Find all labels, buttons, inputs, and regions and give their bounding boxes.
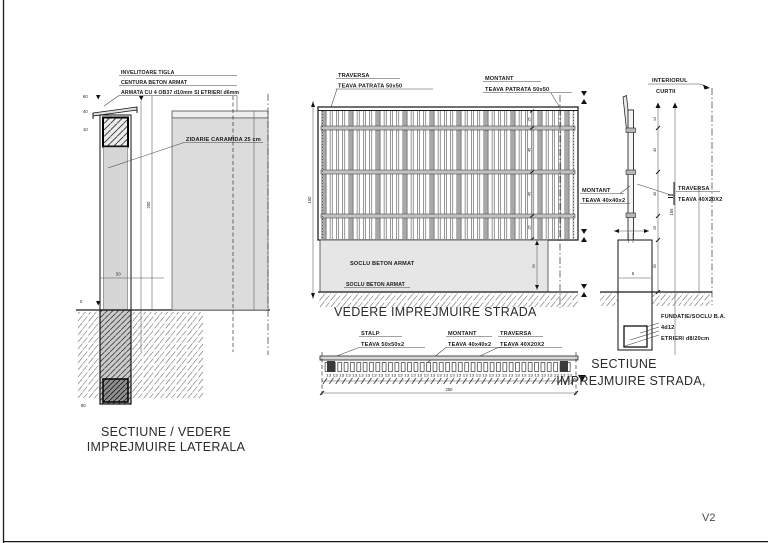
centura-band [172,111,268,118]
interior-label-line2: CURTII [656,89,676,95]
dim-ground: 0 [80,299,83,304]
level-marker-icon [581,292,587,297]
traversa-label: TRAVERSA [338,73,370,79]
section-title-line2: IMPREJMUIRE STRADA, [556,374,705,388]
elevation-markers [581,91,587,297]
stalp-spec: TEAVA 50x50x2 [361,342,404,348]
seg-dim: 25 [528,117,532,121]
seg-dim: 45 [653,192,657,196]
dim-soclu: 50 [116,272,121,277]
footing-block [103,379,128,402]
level-marker-icon [96,95,101,100]
dim-panel-height: 150 [307,196,312,204]
seg-dim: 50 [653,264,657,268]
lateral-section-view: INVELITOARE TIGLA CENTURA BETON ARMAT AR… [76,70,270,454]
soclu-label: SOCLU BETON ARMAT [350,261,415,267]
level-marker-icon [581,91,587,96]
traversa-label: TRAVERSA [678,186,710,192]
callout-leader [478,348,498,358]
soil-hatch [78,312,99,398]
centura-beton-hatched [103,118,128,147]
wall-label: ZIDARIE CARAMIDA 25 cm [186,137,261,143]
dim-arrow-icon [311,293,315,299]
montant-label: MONTANT [448,331,477,337]
street-view-title: VEDERE IMPREJMUIRE STRADA [334,305,537,319]
section-title-line1: SECTIUNE [591,357,657,371]
fence-panel [318,107,578,240]
montant-spec: TEAVA 40x40x2 [448,342,491,348]
note-armare: ARMATA CU 4 OB37 d10mm SI ETRIERI d6mm [121,90,239,96]
note-invelitoare: INVELITOARE TIGLA [121,70,175,76]
traversa-spec: TEAVA PATRATA 50x50 [338,84,402,90]
street-section-view: INTERIORUL CURTII MONTANT TEAVA 40x40x2 [556,78,726,388]
montant-section-callout: MONTANT TEAVA 40x40x2 [580,186,630,204]
traversa-rail [321,214,575,218]
revision-label: V2 [702,512,715,524]
callout-leader [334,348,359,358]
overall-dim: 250 [446,387,454,392]
foundation-label-line2: 4d12 [661,325,674,331]
traversa-rail [321,126,575,130]
level-marker-icon [581,229,587,234]
direction-arrow-icon [703,85,710,90]
traversa-plan [320,356,578,360]
seg-dim: 45 [653,148,657,152]
traversa-spec: TEAVA 40X20X2 [500,342,544,348]
montant-callout: MONTANT TEAVA PATRATA 50x50 [483,76,572,111]
stalp-plan [327,361,335,372]
lateral-title-line2: IMPREJMUIRE LATERALA [87,440,246,454]
stalp-plan [560,361,568,372]
interior-label-line1: INTERIORUL [652,78,688,84]
dim-arrow-icon [644,229,649,233]
dim-ticks [322,377,576,385]
dim-arrow-icon [656,103,661,109]
soclu-plinth: SOCLU BETON ARMAT SOCLU BETON ARMAT 50 [320,240,548,292]
dim-height: 200 [146,201,151,209]
soil-hatch [652,293,710,306]
soclu-body [618,240,652,292]
seg-dim: 25 [653,226,657,230]
note-leader-cap [104,96,119,107]
dim-soclu-height: 50 [532,264,536,268]
traversa-cut [626,213,636,218]
montant-spec: TEAVA 40x40x2 [582,198,625,204]
dim-arrow-icon [311,102,315,108]
montant-section [614,96,649,241]
foundation-label-line3: ETRIERI d8/20cm [661,336,709,342]
dim-d1: 60 [83,94,88,99]
montant-spec: TEAVA PATRATA 50x50 [485,87,549,93]
zidarie-body [104,147,128,310]
soil-hatch [132,312,203,398]
dim-d3: 10 [83,127,88,132]
fence-plan-strip: 13 13 13 13 13 13 13 13 13 13 13 13 13 1… [320,352,578,396]
dim-d2: 40 [83,109,88,114]
traversa-spec: TEAVA 40X20X2 [678,197,722,203]
foundation-label-line1: FUNDATIE/SOCLU B.A. [661,314,726,320]
traversa-section-callout: TRAVERSA TEAVA 40X20X2 [637,182,722,205]
level-marker-icon [581,284,587,289]
note-centura: CENTURA BETON ARMAT [121,80,188,86]
lateral-title-line1: SECTIUNE / VEDERE [101,425,231,439]
seg-dim: 45 [528,148,532,152]
traversa-cut [626,170,636,175]
seg-dim: 25 [528,225,532,229]
dim-arrow-icon [673,103,678,109]
dim-depth: 80 [81,403,86,408]
stalp-callout: STALP TEAVA 50x50x2 [334,331,425,357]
top-annotation-block: INVELITOARE TIGLA CENTURA BETON ARMAT AR… [96,70,239,113]
street-elevation-view: TRAVERSA TEAVA PATRATA 50x50 MONTANT TEA… [307,73,587,396]
spacing-dims: 13 13 13 13 13 13 13 13 13 13 13 13 13 1… [326,374,572,378]
level-marker-icon [581,99,587,104]
drawing-sheet: INVELITOARE TIGLA CENTURA BETON ARMAT AR… [0,0,768,543]
montant-label: MONTANT [582,188,611,194]
post-section [93,107,137,404]
traversa-cut [626,128,636,133]
bars-plan-row [324,362,572,372]
traversa-label: TRAVERSA [500,331,532,337]
interior-callout: INTERIORUL CURTII [648,78,710,95]
dim-arrow-icon [614,229,619,233]
montant-label: MONTANT [485,76,514,82]
seg-dim: 45 [528,192,532,196]
soclu-label-2: SOCLU BETON ARMAT [346,282,406,288]
stalp-label: STALP [361,331,380,337]
level-marker-icon [581,237,587,242]
level-marker-icon [139,96,144,101]
traversa-rail [321,170,575,174]
cad-canvas: INVELITOARE TIGLA CENTURA BETON ARMAT AR… [0,0,768,543]
seg-dim: 13 [653,117,657,121]
wall-body [172,118,268,310]
overall-dim: 155 [669,208,674,216]
soil-hatch [600,293,618,306]
